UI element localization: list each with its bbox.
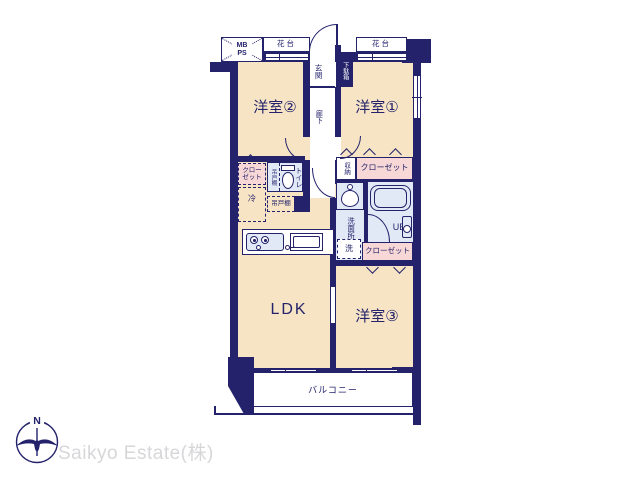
company-logo-text: Saikyo Estate(株) xyxy=(58,442,288,466)
washroom-label: 洗面所 xyxy=(346,217,354,240)
balcony-rail-line xyxy=(214,413,420,415)
balcony-label: バルコニー xyxy=(293,384,373,397)
flower-stand-left-label: 花台 xyxy=(263,37,310,52)
window-room1-top xyxy=(358,53,406,61)
entrance-door-arc xyxy=(309,24,337,52)
closet-top-right-label: クローゼット xyxy=(356,157,413,180)
refrigerator-label: 冷 xyxy=(238,190,266,208)
vanity-basin xyxy=(341,190,359,207)
hanging-cupboard-side: 吊戸棚 xyxy=(268,163,280,191)
wall-corridor-left-upper xyxy=(303,52,310,137)
closet-left-label: クロー ゼット xyxy=(238,163,266,185)
meter-box-label: MB PS xyxy=(232,38,252,61)
meter-pipe-box: MB PS xyxy=(221,37,263,62)
wall-corridor-left-lower xyxy=(303,160,310,198)
wall-corridor-right-upper xyxy=(335,87,341,137)
hallway-label-box: 廊下 xyxy=(312,103,325,131)
room2-label: 洋室② xyxy=(243,98,307,118)
washing-machine-label: 洗 xyxy=(337,239,361,259)
wall-corner-block xyxy=(294,196,310,212)
stove-burner-3 xyxy=(256,245,261,250)
shoe-cabinet: 下駄箱 xyxy=(336,55,353,87)
flower-stand-right-label: 花台 xyxy=(356,37,407,52)
toilet-label: トイレ xyxy=(294,167,302,188)
window-room2-top xyxy=(266,53,308,61)
closet-bottom-right-label: クローゼット xyxy=(362,242,413,261)
entrance-label-box: 玄関 xyxy=(311,56,325,86)
corner-block-bottom-left xyxy=(225,357,254,414)
wall-left xyxy=(230,62,238,372)
floor-plan-canvas: 下駄箱 MB PS 花台 花台 クロー ゼット 冷 吊戸棚 トイレ 吊戸棚 xyxy=(0,0,640,480)
hanging-cupboard-label: 吊戸棚 xyxy=(267,196,295,212)
pipe-space-text: PS xyxy=(237,50,246,58)
balcony-rail-end xyxy=(214,406,216,414)
closet-left-line1: クロー xyxy=(242,167,262,174)
compass-north-label: N xyxy=(30,416,44,428)
stove-burner-1-dot xyxy=(253,239,256,242)
wall-ldk-washroom xyxy=(330,198,336,368)
room1-label: 洋室① xyxy=(345,98,409,118)
storage-label: 収納 xyxy=(342,162,349,175)
sink-faucet-arm xyxy=(289,247,295,248)
toilet-label-box: トイレ xyxy=(293,164,303,191)
meter-box-text: MB xyxy=(237,42,248,50)
entrance-label: 玄関 xyxy=(314,64,322,79)
hanging-cupboard-side-label: 吊戸棚 xyxy=(270,169,276,186)
closet-left-line2: ゼット xyxy=(242,174,262,181)
room3-label: 洋室③ xyxy=(345,307,409,327)
entry-step-line xyxy=(310,86,335,88)
bathtub-inner xyxy=(374,188,407,208)
sink-basin xyxy=(293,236,320,248)
window-room1-right xyxy=(413,76,421,118)
bath-washlet-seat xyxy=(403,225,411,233)
hallway-label: 廊下 xyxy=(315,110,323,124)
ldk-label: LDK xyxy=(261,300,317,320)
sliding-door-room3 xyxy=(330,287,336,323)
entrance-door-leaf xyxy=(336,24,338,52)
shoe-cabinet-label: 下駄箱 xyxy=(341,62,348,80)
stove-burner-2-dot xyxy=(264,239,267,242)
